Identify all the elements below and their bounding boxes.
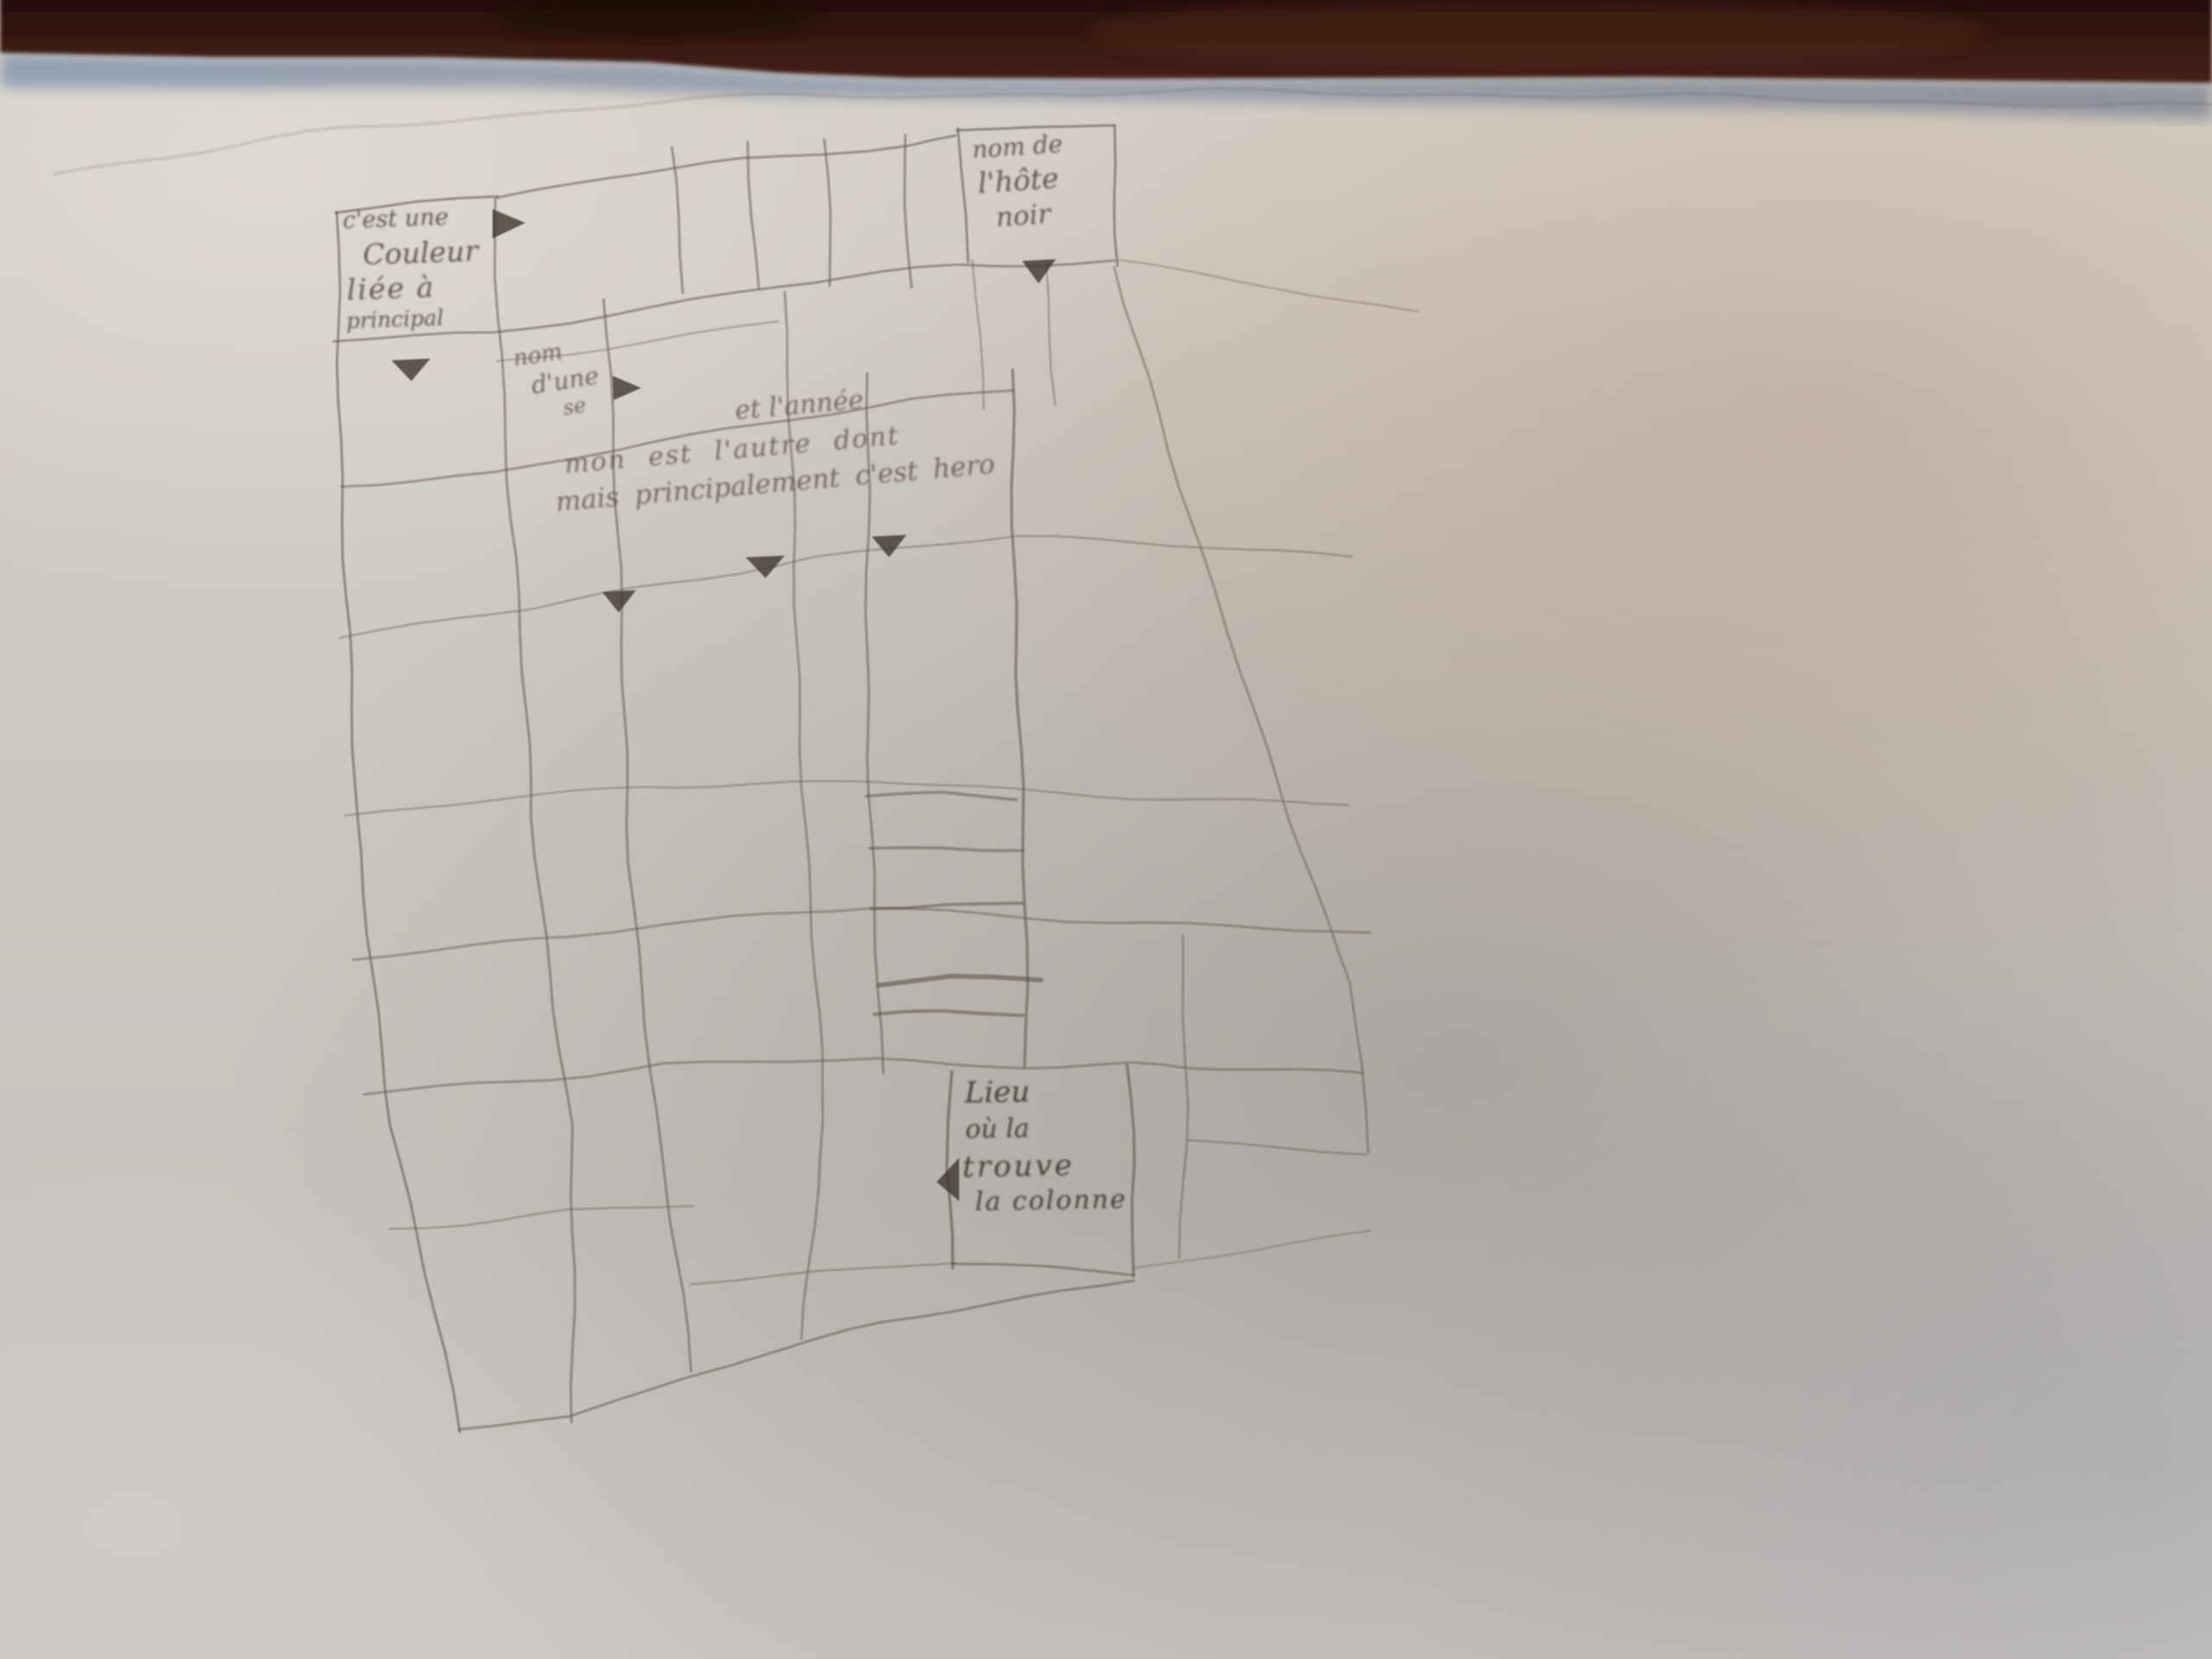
arrow-down-first-column (391, 359, 430, 381)
pencil-line (364, 1058, 1363, 1095)
note-line: noir (995, 199, 1068, 234)
pencil-line (874, 1011, 1023, 1015)
pencil-line (1179, 936, 1188, 1258)
pencil-line (879, 976, 1042, 986)
note-line: la colonne (975, 1185, 1128, 1217)
note-line: l'hôte (977, 162, 1066, 200)
note-line: nom de (971, 130, 1064, 164)
note-line: où la (965, 1113, 1127, 1146)
note-line: Couleur (362, 235, 479, 272)
pencil-line (1115, 267, 1369, 1153)
pencil-line (1188, 1141, 1366, 1155)
note-line: liée à (346, 270, 480, 307)
arrow-down-middle-right (872, 535, 906, 557)
pencil-line (691, 1263, 957, 1285)
pencil-line (905, 135, 912, 287)
pencil-line (957, 125, 1115, 130)
photo-of-pencil-sketch: c'est une Couleur liée à principal nom d… (0, 0, 2212, 1659)
pencil-line (337, 212, 460, 1432)
pencil-line (1128, 1065, 1135, 1276)
pencil-arrowheads (391, 209, 1056, 1201)
pencil-line (390, 1206, 693, 1230)
pencil-line (824, 139, 830, 285)
pencil-line (870, 848, 1023, 850)
note-line: trouve (962, 1147, 1127, 1184)
note-top-right-cell: nom de l'hôte noir (971, 130, 1069, 236)
pencil-line (1046, 261, 1056, 404)
pencil-line (747, 142, 759, 289)
arrow-down-middle-center (746, 556, 785, 578)
arrow-down-middle-left (602, 590, 636, 613)
arrow-down-top-right-cell (1022, 259, 1056, 283)
pencil-line (340, 536, 1351, 638)
arrow-right-mid-left-note (613, 376, 641, 400)
note-bottom-box: Lieu où la trouve la colonne (964, 1074, 1128, 1217)
pencil-line (952, 1264, 1133, 1275)
pencil-sketch (0, 0, 2212, 1659)
pencil-line (871, 903, 1022, 909)
pencil-line (54, 88, 2211, 174)
note-top-left-cell: c'est une Couleur liée à principal (342, 203, 481, 334)
note-line: principal (346, 304, 480, 334)
arrow-right-top-left-cell (493, 209, 525, 238)
pencil-line (346, 781, 1348, 816)
pencil-line (498, 136, 956, 198)
pencil-line (1012, 370, 1028, 1066)
pencil-line (1115, 125, 1118, 265)
pencil-line (958, 129, 969, 262)
note-line: Lieu (964, 1074, 1126, 1110)
pencil-line (867, 792, 1017, 800)
pencil-line (1118, 260, 1417, 312)
pencil-line (1135, 1230, 1370, 1268)
pencil-line (459, 1281, 1134, 1429)
note-line: c'est une (342, 203, 477, 234)
pencil-line (353, 908, 1370, 960)
